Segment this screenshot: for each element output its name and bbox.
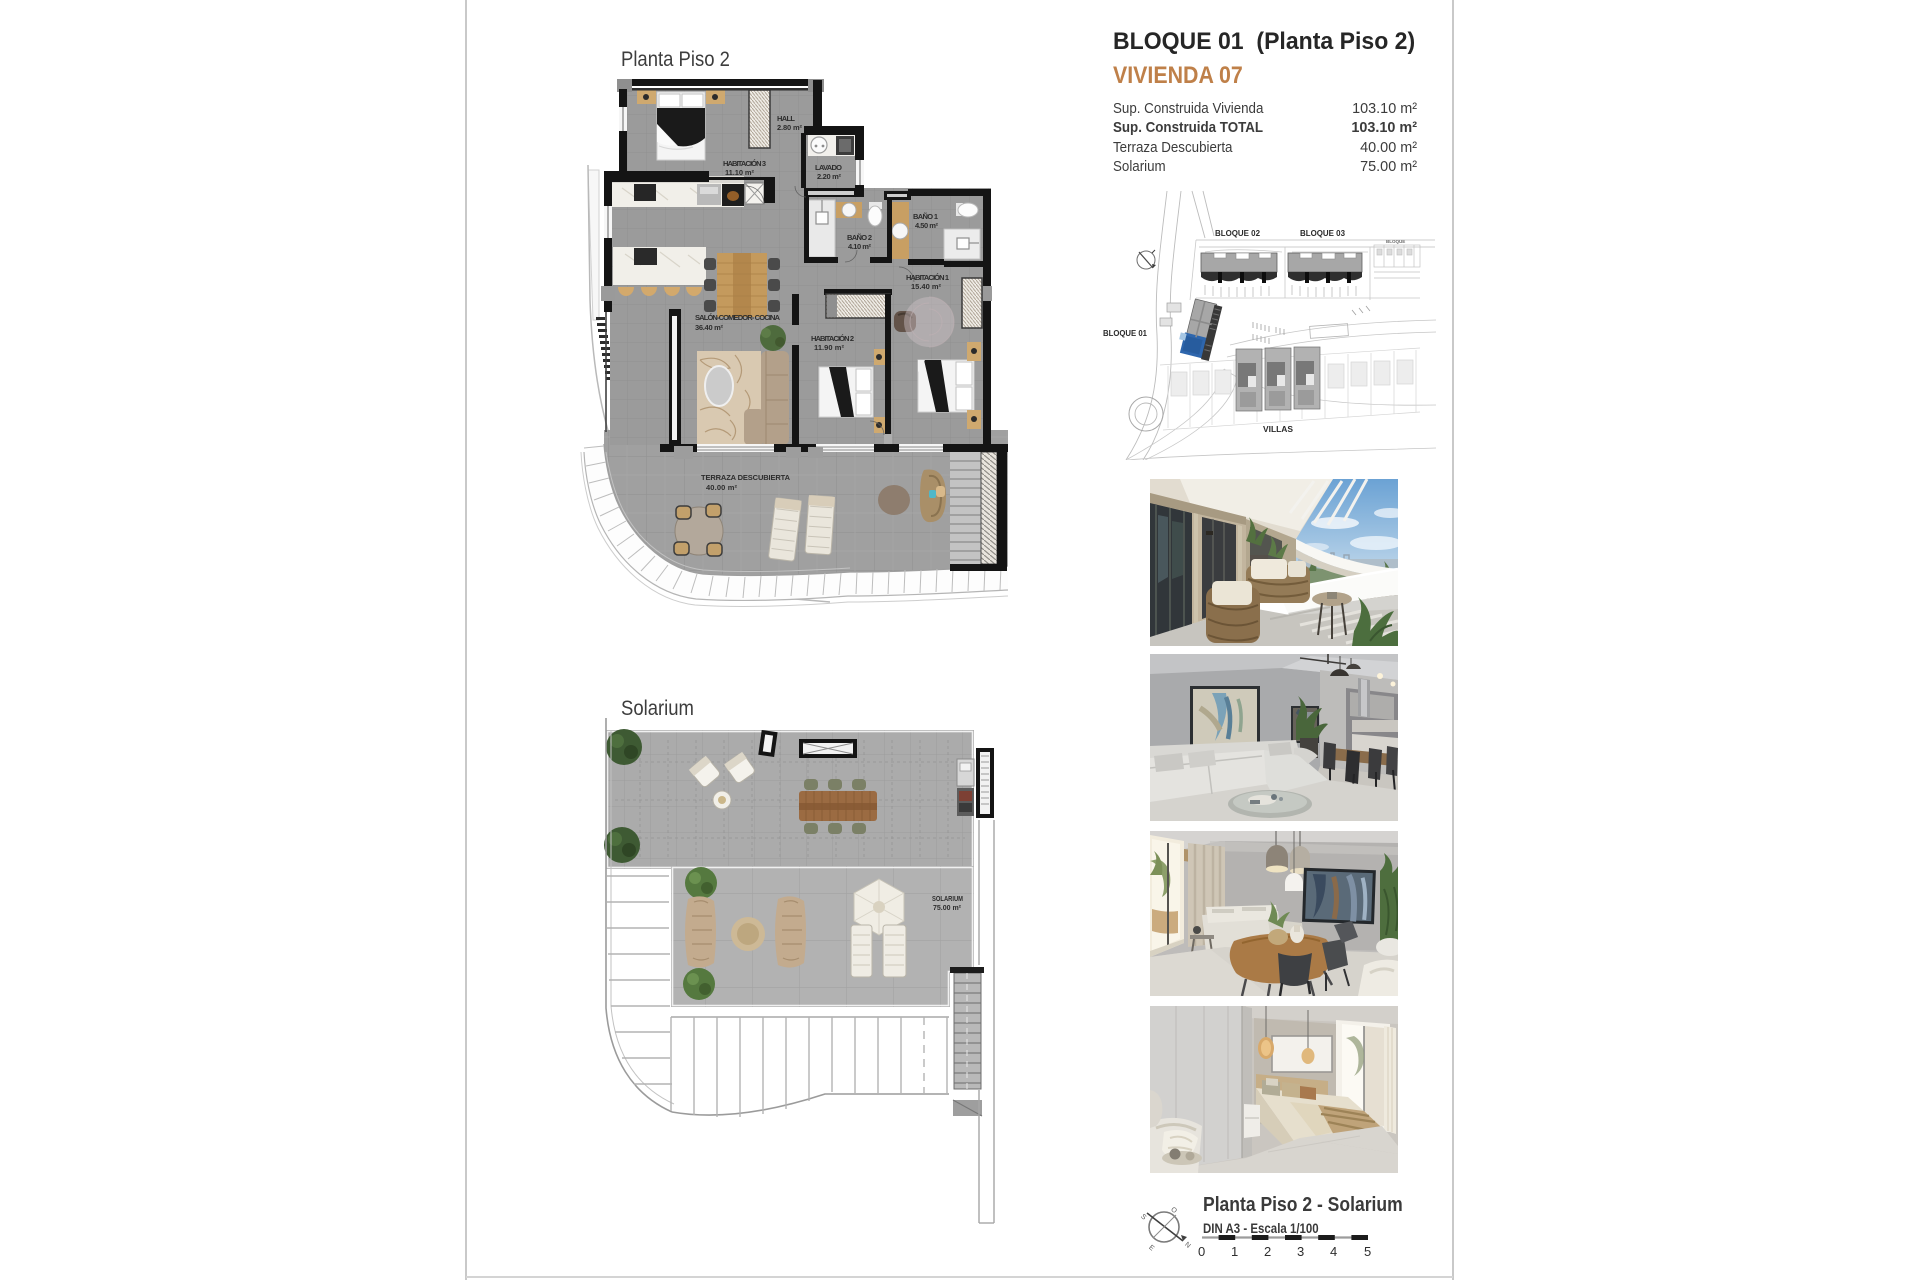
svg-text:15.40 m²: 15.40 m² [911,282,942,291]
svg-text:BLOQUE 01: BLOQUE 01 [1103,329,1148,338]
svg-text:BLOQUE 03: BLOQUE 03 [1300,229,1346,238]
svg-text:TERRAZA DESCUBIERTA: TERRAZA DESCUBIERTA [701,473,791,482]
svg-text:2: 2 [1264,1244,1271,1259]
svg-text:2.80 m²: 2.80 m² [777,123,803,132]
svg-text:40.00 m²: 40.00 m² [706,483,738,492]
svg-text:N: N [1183,1241,1191,1250]
svg-text:BLOQUE 02: BLOQUE 02 [1215,229,1261,238]
svg-text:SOLARIUM: SOLARIUM [932,896,963,903]
svg-text:S: S [1139,1213,1147,1222]
svg-text:1: 1 [1231,1244,1238,1259]
svg-text:SALÓN-COMEDOR- COCINA: SALÓN-COMEDOR- COCINA [695,313,781,322]
svg-text:11.10 m²: 11.10 m² [725,168,755,177]
svg-text:HALL: HALL [777,114,795,123]
svg-text:4: 4 [1330,1244,1337,1259]
svg-text:3: 3 [1297,1244,1304,1259]
svg-text:4.50 m²: 4.50 m² [915,221,939,230]
svg-text:BAÑO 2: BAÑO 2 [847,233,872,242]
svg-text:36.40 m²: 36.40 m² [695,323,724,332]
svg-text:HABITACIÓN 3: HABITACIÓN 3 [723,159,766,168]
svg-text:2.20 m²: 2.20 m² [817,172,842,181]
svg-text:5: 5 [1364,1244,1371,1259]
svg-text:75.00 m²: 75.00 m² [933,905,962,912]
svg-text:E: E [1147,1244,1155,1253]
svg-text:0: 0 [1198,1244,1205,1259]
svg-text:BLOQUE: BLOQUE [1386,239,1405,244]
svg-text:LAVADO: LAVADO [815,163,842,172]
svg-text:HABITACIÓN 2: HABITACIÓN 2 [811,334,854,343]
svg-text:BAÑO 1: BAÑO 1 [913,212,938,221]
svg-text:4.10 m²: 4.10 m² [848,242,872,251]
svg-text:VILLAS: VILLAS [1263,424,1293,434]
svg-text:HABITACIÓN 1: HABITACIÓN 1 [906,273,949,282]
svg-text:11.90 m²: 11.90 m² [814,343,845,352]
